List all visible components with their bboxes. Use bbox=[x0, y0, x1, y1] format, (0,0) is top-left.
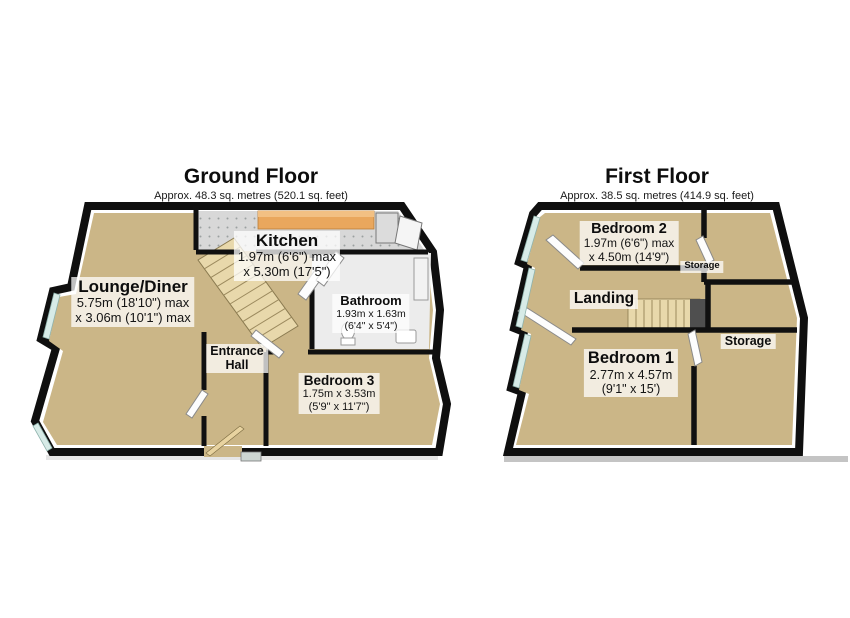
room-dimension: (6'4" x 5'4") bbox=[336, 321, 405, 333]
gf-toilet-tank bbox=[341, 338, 355, 345]
gf-entrance-step bbox=[241, 452, 261, 461]
room-name: Lounge/Diner bbox=[75, 277, 190, 296]
floorplan-page: Ground Floor Approx. 48.3 sq. metres (52… bbox=[0, 0, 850, 618]
room-label-landing: Landing bbox=[570, 290, 638, 309]
room-dimension: 2.77m x 4.57m bbox=[588, 368, 674, 382]
room-label-bathroom: Bathroom 1.93m x 1.63m (6'4" x 5'4") bbox=[332, 294, 409, 333]
room-name: Entrance bbox=[210, 344, 264, 358]
room-name: Hall bbox=[210, 358, 264, 372]
first-floor-subtitle: Approx. 38.5 sq. metres (414.9 sq. feet) bbox=[560, 190, 754, 202]
room-dimension: 1.75m x 3.53m bbox=[303, 388, 376, 400]
room-dimension: (5'9" x 11'7") bbox=[303, 401, 376, 413]
ground-floor-title: Ground Floor bbox=[184, 166, 318, 188]
room-name: Landing bbox=[574, 290, 634, 308]
room-label-kitchen: Kitchen 1.97m (6'6") max x 5.30m (17'5") bbox=[234, 231, 340, 281]
room-label-bedroom2: Bedroom 2 1.97m (6'6") max x 4.50m (14'9… bbox=[580, 221, 679, 265]
room-label-bedroom1: Bedroom 1 2.77m x 4.57m (9'1" x 15') bbox=[584, 349, 678, 397]
room-dimension: 1.93m x 1.63m bbox=[336, 309, 405, 321]
room-label-entrance-hall: Entrance Hall bbox=[206, 344, 268, 373]
room-name: Storage bbox=[725, 334, 772, 348]
first-floor-shadow bbox=[504, 456, 848, 462]
room-name: Bedroom 1 bbox=[588, 349, 674, 368]
room-dimension: 1.97m (6'6") max bbox=[238, 250, 336, 265]
ground-floor-subtitle: Approx. 48.3 sq. metres (520.1 sq. feet) bbox=[154, 190, 348, 202]
gf-kitchen-counter-top bbox=[258, 211, 374, 217]
room-dimension: x 3.06m (10'1") max bbox=[75, 311, 190, 326]
room-label-lounge-diner: Lounge/Diner 5.75m (18'10") max x 3.06m … bbox=[71, 277, 194, 327]
room-label-storage-right: Storage bbox=[721, 334, 776, 349]
room-dimension: 5.75m (18'10") max bbox=[75, 296, 190, 311]
room-name: Bedroom 3 bbox=[303, 373, 376, 388]
room-name: Kitchen bbox=[238, 231, 336, 250]
room-label-storage-top: Storage bbox=[680, 261, 723, 273]
room-label-bedroom3: Bedroom 3 1.75m x 3.53m (5'9" x 11'7") bbox=[299, 373, 380, 414]
room-dimension: (9'1" x 15') bbox=[588, 382, 674, 396]
room-dimension: x 4.50m (14'9") bbox=[584, 251, 675, 265]
room-dimension: x 5.30m (17'5") bbox=[238, 265, 336, 280]
ff-staircase bbox=[628, 299, 708, 331]
gf-bathtub bbox=[414, 258, 428, 300]
room-name: Bedroom 2 bbox=[584, 221, 675, 237]
room-dimension: 1.97m (6'6") max bbox=[584, 237, 675, 251]
gf-appliance-1 bbox=[376, 213, 398, 243]
room-name: Bathroom bbox=[336, 294, 405, 309]
room-name: Storage bbox=[684, 261, 719, 272]
first-floor-title: First Floor bbox=[605, 166, 709, 188]
